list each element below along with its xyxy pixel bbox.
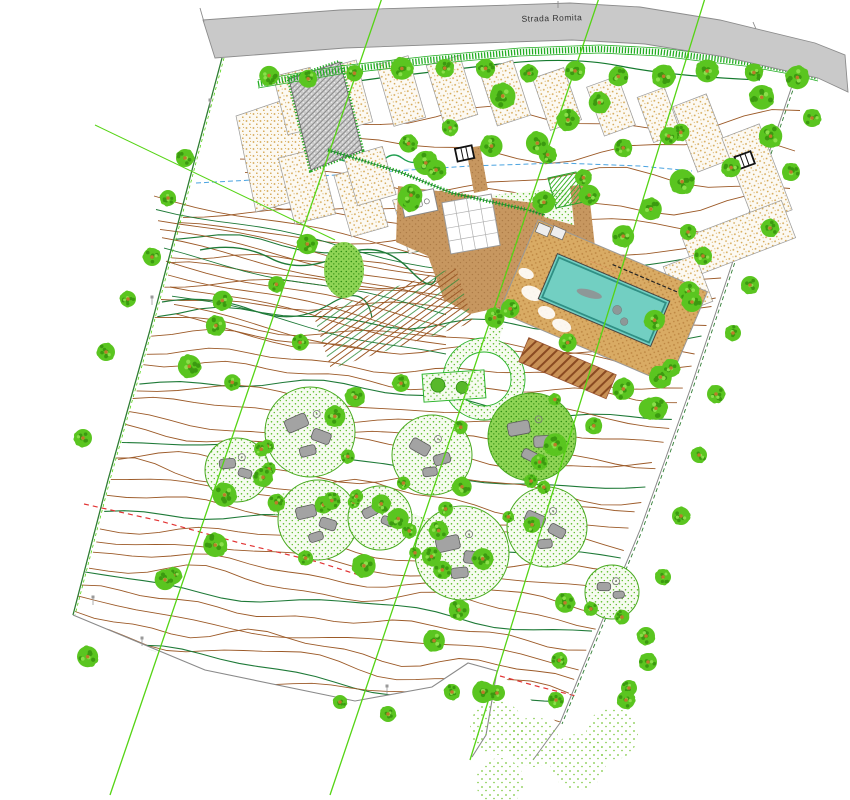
shape bbox=[435, 525, 438, 528]
shape bbox=[352, 504, 354, 506]
shape bbox=[380, 714, 385, 719]
tree-trunk bbox=[214, 324, 218, 328]
shape bbox=[640, 634, 643, 637]
shape bbox=[278, 286, 283, 291]
shape bbox=[724, 164, 728, 168]
shape bbox=[77, 435, 80, 438]
tree-symbol bbox=[613, 377, 635, 400]
tree-trunk bbox=[407, 142, 411, 146]
shape bbox=[616, 143, 620, 147]
shape bbox=[447, 121, 450, 124]
site-plan-page: Strada Romita ∙∙∙∙∙∙∙∙∙∙ ∙∙∙∙∙ ∙∙∙∙ ∙∙∙∙… bbox=[0, 0, 850, 800]
shape bbox=[753, 97, 758, 102]
shape bbox=[468, 533, 470, 535]
shape bbox=[317, 496, 323, 502]
shape bbox=[311, 242, 315, 246]
shape bbox=[678, 506, 684, 512]
shape bbox=[570, 68, 574, 72]
shape bbox=[215, 329, 221, 335]
shape bbox=[344, 455, 347, 458]
tree-trunk bbox=[769, 134, 773, 138]
shape bbox=[447, 67, 450, 70]
tree-trunk bbox=[508, 307, 512, 311]
shape bbox=[452, 686, 455, 689]
shape bbox=[177, 155, 181, 159]
shape bbox=[105, 343, 111, 349]
tree-trunk bbox=[481, 557, 485, 561]
tree-trunk bbox=[501, 94, 505, 98]
boulder bbox=[537, 539, 552, 549]
shape bbox=[257, 451, 260, 454]
shape bbox=[298, 346, 301, 349]
tree-trunk bbox=[760, 95, 764, 99]
shape bbox=[392, 381, 398, 387]
tree-symbol bbox=[655, 569, 671, 585]
shape bbox=[161, 572, 165, 576]
planting-cluster bbox=[265, 387, 355, 477]
shape bbox=[751, 279, 755, 283]
shape bbox=[615, 580, 617, 582]
shape bbox=[579, 169, 584, 174]
shape bbox=[355, 489, 359, 493]
shape bbox=[619, 390, 623, 394]
shape bbox=[304, 247, 308, 251]
shape bbox=[170, 197, 173, 200]
shape bbox=[256, 446, 259, 449]
shape bbox=[497, 320, 501, 324]
tree-trunk bbox=[546, 153, 550, 157]
tree-symbol bbox=[333, 695, 347, 709]
shape bbox=[626, 382, 630, 386]
tree-trunk bbox=[669, 366, 673, 370]
tree-trunk bbox=[680, 180, 684, 184]
shape bbox=[398, 72, 402, 76]
tree-trunk bbox=[81, 436, 85, 440]
tree-symbol bbox=[741, 276, 759, 294]
shape bbox=[279, 502, 282, 505]
shape bbox=[726, 327, 731, 332]
shape bbox=[270, 497, 273, 500]
shape bbox=[710, 385, 716, 391]
shape bbox=[422, 153, 427, 158]
shape bbox=[438, 521, 444, 527]
shape bbox=[625, 682, 628, 685]
shape bbox=[448, 685, 451, 688]
shrub-mass bbox=[324, 242, 364, 298]
shape bbox=[332, 420, 336, 424]
shape bbox=[772, 224, 776, 228]
shape bbox=[541, 490, 545, 494]
shape bbox=[488, 317, 492, 321]
tree-trunk bbox=[493, 316, 497, 320]
shape bbox=[427, 548, 431, 552]
shape bbox=[485, 561, 489, 565]
tree-trunk bbox=[221, 299, 225, 303]
tree-trunk bbox=[554, 698, 558, 702]
shape bbox=[524, 77, 530, 83]
shape bbox=[269, 463, 272, 466]
contour-line bbox=[82, 585, 587, 650]
shape bbox=[649, 637, 655, 643]
shape bbox=[773, 230, 777, 234]
shape bbox=[398, 522, 402, 526]
tree-trunk bbox=[592, 424, 596, 428]
tree-trunk bbox=[409, 193, 413, 197]
shape bbox=[661, 580, 664, 583]
shape bbox=[358, 393, 362, 397]
shape bbox=[462, 603, 469, 610]
shape bbox=[524, 477, 528, 481]
shape bbox=[343, 703, 346, 706]
shape bbox=[670, 128, 676, 134]
tree-trunk bbox=[355, 495, 359, 499]
shape bbox=[336, 420, 343, 427]
shape bbox=[460, 489, 463, 492]
tree-symbol bbox=[119, 291, 136, 308]
shape bbox=[402, 486, 404, 488]
survey-tick bbox=[200, 8, 204, 22]
shape bbox=[263, 72, 267, 76]
tree-trunk bbox=[617, 75, 621, 79]
shape bbox=[569, 336, 572, 339]
boulder bbox=[422, 467, 437, 477]
tree-symbol bbox=[345, 387, 365, 407]
tree-symbol bbox=[203, 532, 227, 557]
shape bbox=[226, 496, 231, 501]
shape bbox=[626, 148, 629, 151]
shape bbox=[537, 456, 540, 459]
shape bbox=[406, 138, 409, 141]
shape bbox=[745, 288, 751, 294]
shape bbox=[691, 288, 695, 292]
shape bbox=[293, 338, 296, 341]
shape bbox=[504, 309, 507, 312]
shape bbox=[806, 121, 810, 125]
tree-symbol bbox=[725, 325, 741, 342]
shape bbox=[541, 142, 546, 147]
tree-trunk bbox=[432, 639, 436, 643]
shape bbox=[652, 402, 656, 406]
shape bbox=[262, 451, 267, 456]
shape bbox=[562, 596, 566, 600]
shape bbox=[643, 631, 646, 634]
shape bbox=[639, 663, 645, 669]
tree-symbol bbox=[652, 65, 676, 88]
shape bbox=[683, 516, 686, 519]
tree-trunk bbox=[379, 502, 383, 506]
tree-trunk bbox=[507, 515, 511, 519]
shape bbox=[381, 707, 386, 712]
tree-symbol bbox=[745, 63, 764, 81]
tree-trunk bbox=[450, 690, 454, 694]
shape bbox=[333, 493, 336, 496]
shape bbox=[231, 378, 234, 381]
shape bbox=[641, 654, 647, 660]
shape bbox=[435, 642, 439, 646]
tree-trunk bbox=[529, 479, 533, 483]
tree-trunk bbox=[183, 156, 187, 160]
shape bbox=[665, 137, 668, 140]
shape bbox=[104, 355, 108, 359]
shape bbox=[463, 488, 467, 492]
shape bbox=[689, 177, 694, 182]
shape bbox=[530, 475, 533, 478]
shape bbox=[484, 144, 488, 148]
shape bbox=[443, 128, 446, 131]
tree-trunk bbox=[459, 425, 463, 429]
shape bbox=[796, 69, 800, 73]
shape bbox=[193, 368, 198, 373]
shape bbox=[706, 75, 711, 80]
shape bbox=[704, 260, 708, 264]
shape bbox=[400, 187, 407, 194]
utility-post bbox=[141, 637, 144, 640]
tree-trunk bbox=[796, 76, 800, 80]
boulder bbox=[597, 582, 611, 590]
tree-trunk bbox=[399, 381, 403, 385]
tree-trunk bbox=[768, 226, 772, 230]
tree-trunk bbox=[667, 134, 671, 138]
shape bbox=[626, 704, 630, 708]
shape bbox=[267, 476, 273, 482]
shape bbox=[669, 139, 672, 142]
shape bbox=[712, 68, 719, 75]
shape bbox=[384, 508, 388, 512]
shape bbox=[414, 554, 416, 556]
tree-trunk bbox=[484, 67, 488, 71]
tree-trunk bbox=[690, 300, 694, 304]
shape bbox=[473, 556, 477, 560]
planting-cluster bbox=[507, 487, 587, 567]
shape bbox=[594, 419, 597, 422]
shape bbox=[613, 235, 617, 239]
tree-symbol bbox=[297, 234, 319, 254]
shape bbox=[496, 689, 499, 692]
tree-trunk bbox=[620, 615, 624, 619]
shape bbox=[619, 695, 623, 699]
shape bbox=[490, 693, 493, 696]
tree-trunk bbox=[402, 481, 406, 485]
tree-symbol bbox=[298, 551, 313, 566]
shape bbox=[406, 482, 410, 486]
shape bbox=[578, 191, 585, 198]
shape bbox=[725, 333, 730, 338]
shape bbox=[543, 480, 547, 484]
tree-trunk bbox=[621, 146, 625, 150]
shape bbox=[661, 404, 668, 411]
shape bbox=[183, 371, 190, 378]
shape bbox=[154, 254, 157, 257]
shape bbox=[342, 697, 346, 701]
shape bbox=[411, 142, 415, 146]
tree-trunk bbox=[566, 118, 570, 122]
shape bbox=[427, 630, 434, 637]
tree-symbol bbox=[565, 61, 585, 81]
shape bbox=[560, 700, 563, 703]
shape bbox=[554, 695, 557, 698]
shape bbox=[489, 63, 493, 67]
shape bbox=[463, 424, 467, 428]
shape bbox=[310, 73, 313, 76]
shape bbox=[223, 303, 227, 307]
shape bbox=[591, 196, 595, 200]
shape bbox=[586, 611, 590, 615]
shape bbox=[446, 71, 452, 77]
shape bbox=[625, 612, 630, 617]
tree-trunk bbox=[553, 443, 557, 447]
shape bbox=[447, 571, 451, 575]
shape bbox=[807, 114, 811, 118]
shape bbox=[478, 681, 485, 688]
shape bbox=[413, 157, 421, 165]
shape bbox=[353, 557, 361, 565]
tree-symbol bbox=[436, 59, 454, 77]
shape bbox=[100, 351, 104, 355]
shape bbox=[411, 147, 415, 151]
tree-trunk bbox=[275, 501, 279, 505]
shape bbox=[533, 479, 536, 482]
shape bbox=[299, 335, 302, 338]
shape bbox=[358, 571, 366, 579]
shape bbox=[552, 393, 556, 397]
tree-symbol bbox=[142, 248, 161, 266]
shape bbox=[507, 487, 587, 567]
shape bbox=[702, 247, 708, 253]
shape bbox=[349, 70, 352, 73]
tree-trunk bbox=[661, 575, 665, 579]
shape bbox=[305, 72, 309, 76]
shape bbox=[497, 314, 501, 318]
tree-symbol bbox=[480, 135, 503, 157]
tree-symbol bbox=[77, 645, 98, 667]
shape bbox=[751, 286, 755, 290]
shape bbox=[159, 576, 163, 580]
shape bbox=[788, 76, 793, 81]
shape bbox=[273, 74, 277, 78]
tree-symbol bbox=[707, 385, 726, 403]
shape bbox=[534, 519, 539, 524]
shape bbox=[625, 233, 629, 237]
utility-post bbox=[209, 99, 212, 102]
shape bbox=[398, 480, 401, 483]
shape bbox=[666, 75, 670, 79]
shape bbox=[316, 413, 318, 415]
tree-symbol bbox=[206, 315, 226, 336]
shape bbox=[655, 202, 659, 206]
shape bbox=[280, 499, 283, 502]
shape bbox=[594, 604, 597, 607]
shape bbox=[588, 601, 592, 605]
tree-trunk bbox=[659, 375, 663, 379]
shape bbox=[697, 259, 703, 265]
tree-symbol bbox=[399, 134, 418, 152]
shape bbox=[188, 158, 192, 162]
shape bbox=[673, 364, 677, 368]
shape bbox=[355, 387, 361, 393]
shape bbox=[458, 430, 462, 434]
tree-trunk bbox=[150, 255, 154, 259]
shape bbox=[404, 381, 407, 384]
tree-trunk bbox=[810, 116, 814, 120]
shape bbox=[542, 457, 545, 460]
shape bbox=[429, 561, 435, 567]
shape bbox=[254, 475, 258, 479]
tree-trunk bbox=[275, 282, 279, 286]
tree-trunk bbox=[538, 460, 542, 464]
tree-trunk bbox=[298, 341, 302, 345]
shape bbox=[438, 574, 442, 578]
tree-trunk bbox=[434, 168, 438, 172]
shape bbox=[209, 536, 214, 541]
shape bbox=[534, 137, 539, 142]
shape bbox=[566, 68, 570, 72]
shape bbox=[639, 660, 643, 664]
tree-symbol bbox=[555, 593, 576, 613]
shape bbox=[91, 658, 95, 662]
shape bbox=[81, 657, 85, 661]
shape bbox=[746, 65, 752, 71]
tree-symbol bbox=[392, 374, 410, 392]
tree-trunk bbox=[230, 381, 234, 385]
shape bbox=[552, 510, 554, 512]
shape bbox=[430, 378, 445, 393]
shape bbox=[439, 170, 443, 174]
shape bbox=[432, 159, 439, 166]
shape bbox=[583, 179, 586, 182]
shape bbox=[677, 519, 681, 523]
shape bbox=[308, 247, 312, 251]
tree-trunk bbox=[495, 691, 499, 695]
shape bbox=[510, 312, 514, 316]
tree-trunk bbox=[430, 555, 434, 559]
shape bbox=[674, 369, 680, 375]
tree-trunk bbox=[261, 476, 265, 480]
tree-trunk bbox=[267, 74, 271, 78]
shape bbox=[381, 506, 384, 509]
tree-symbol bbox=[73, 429, 92, 448]
shape bbox=[733, 166, 736, 169]
shape bbox=[596, 94, 600, 98]
tree-trunk bbox=[530, 523, 534, 527]
shape bbox=[227, 488, 231, 492]
shape bbox=[719, 388, 723, 392]
tree-trunk bbox=[104, 350, 108, 354]
tree-trunk bbox=[573, 69, 577, 73]
shape bbox=[449, 504, 452, 507]
tree-trunk bbox=[362, 564, 366, 568]
tree-symbol bbox=[644, 397, 668, 420]
shape bbox=[648, 653, 654, 659]
shape bbox=[212, 318, 216, 322]
shape bbox=[682, 185, 687, 190]
tree-trunk bbox=[654, 406, 658, 410]
tree-trunk bbox=[697, 453, 701, 457]
shape bbox=[185, 161, 189, 165]
shape bbox=[543, 462, 546, 465]
shape bbox=[506, 98, 514, 106]
tree-trunk bbox=[437, 529, 441, 533]
shape bbox=[266, 78, 270, 82]
shape bbox=[186, 360, 190, 364]
tree-trunk bbox=[705, 69, 709, 73]
shape bbox=[534, 461, 537, 464]
shape bbox=[498, 102, 503, 107]
tree-trunk bbox=[563, 601, 567, 605]
tree-symbol bbox=[350, 489, 363, 503]
shape bbox=[132, 298, 135, 301]
shape bbox=[745, 281, 749, 285]
loose-canopy-cluster bbox=[476, 758, 524, 800]
